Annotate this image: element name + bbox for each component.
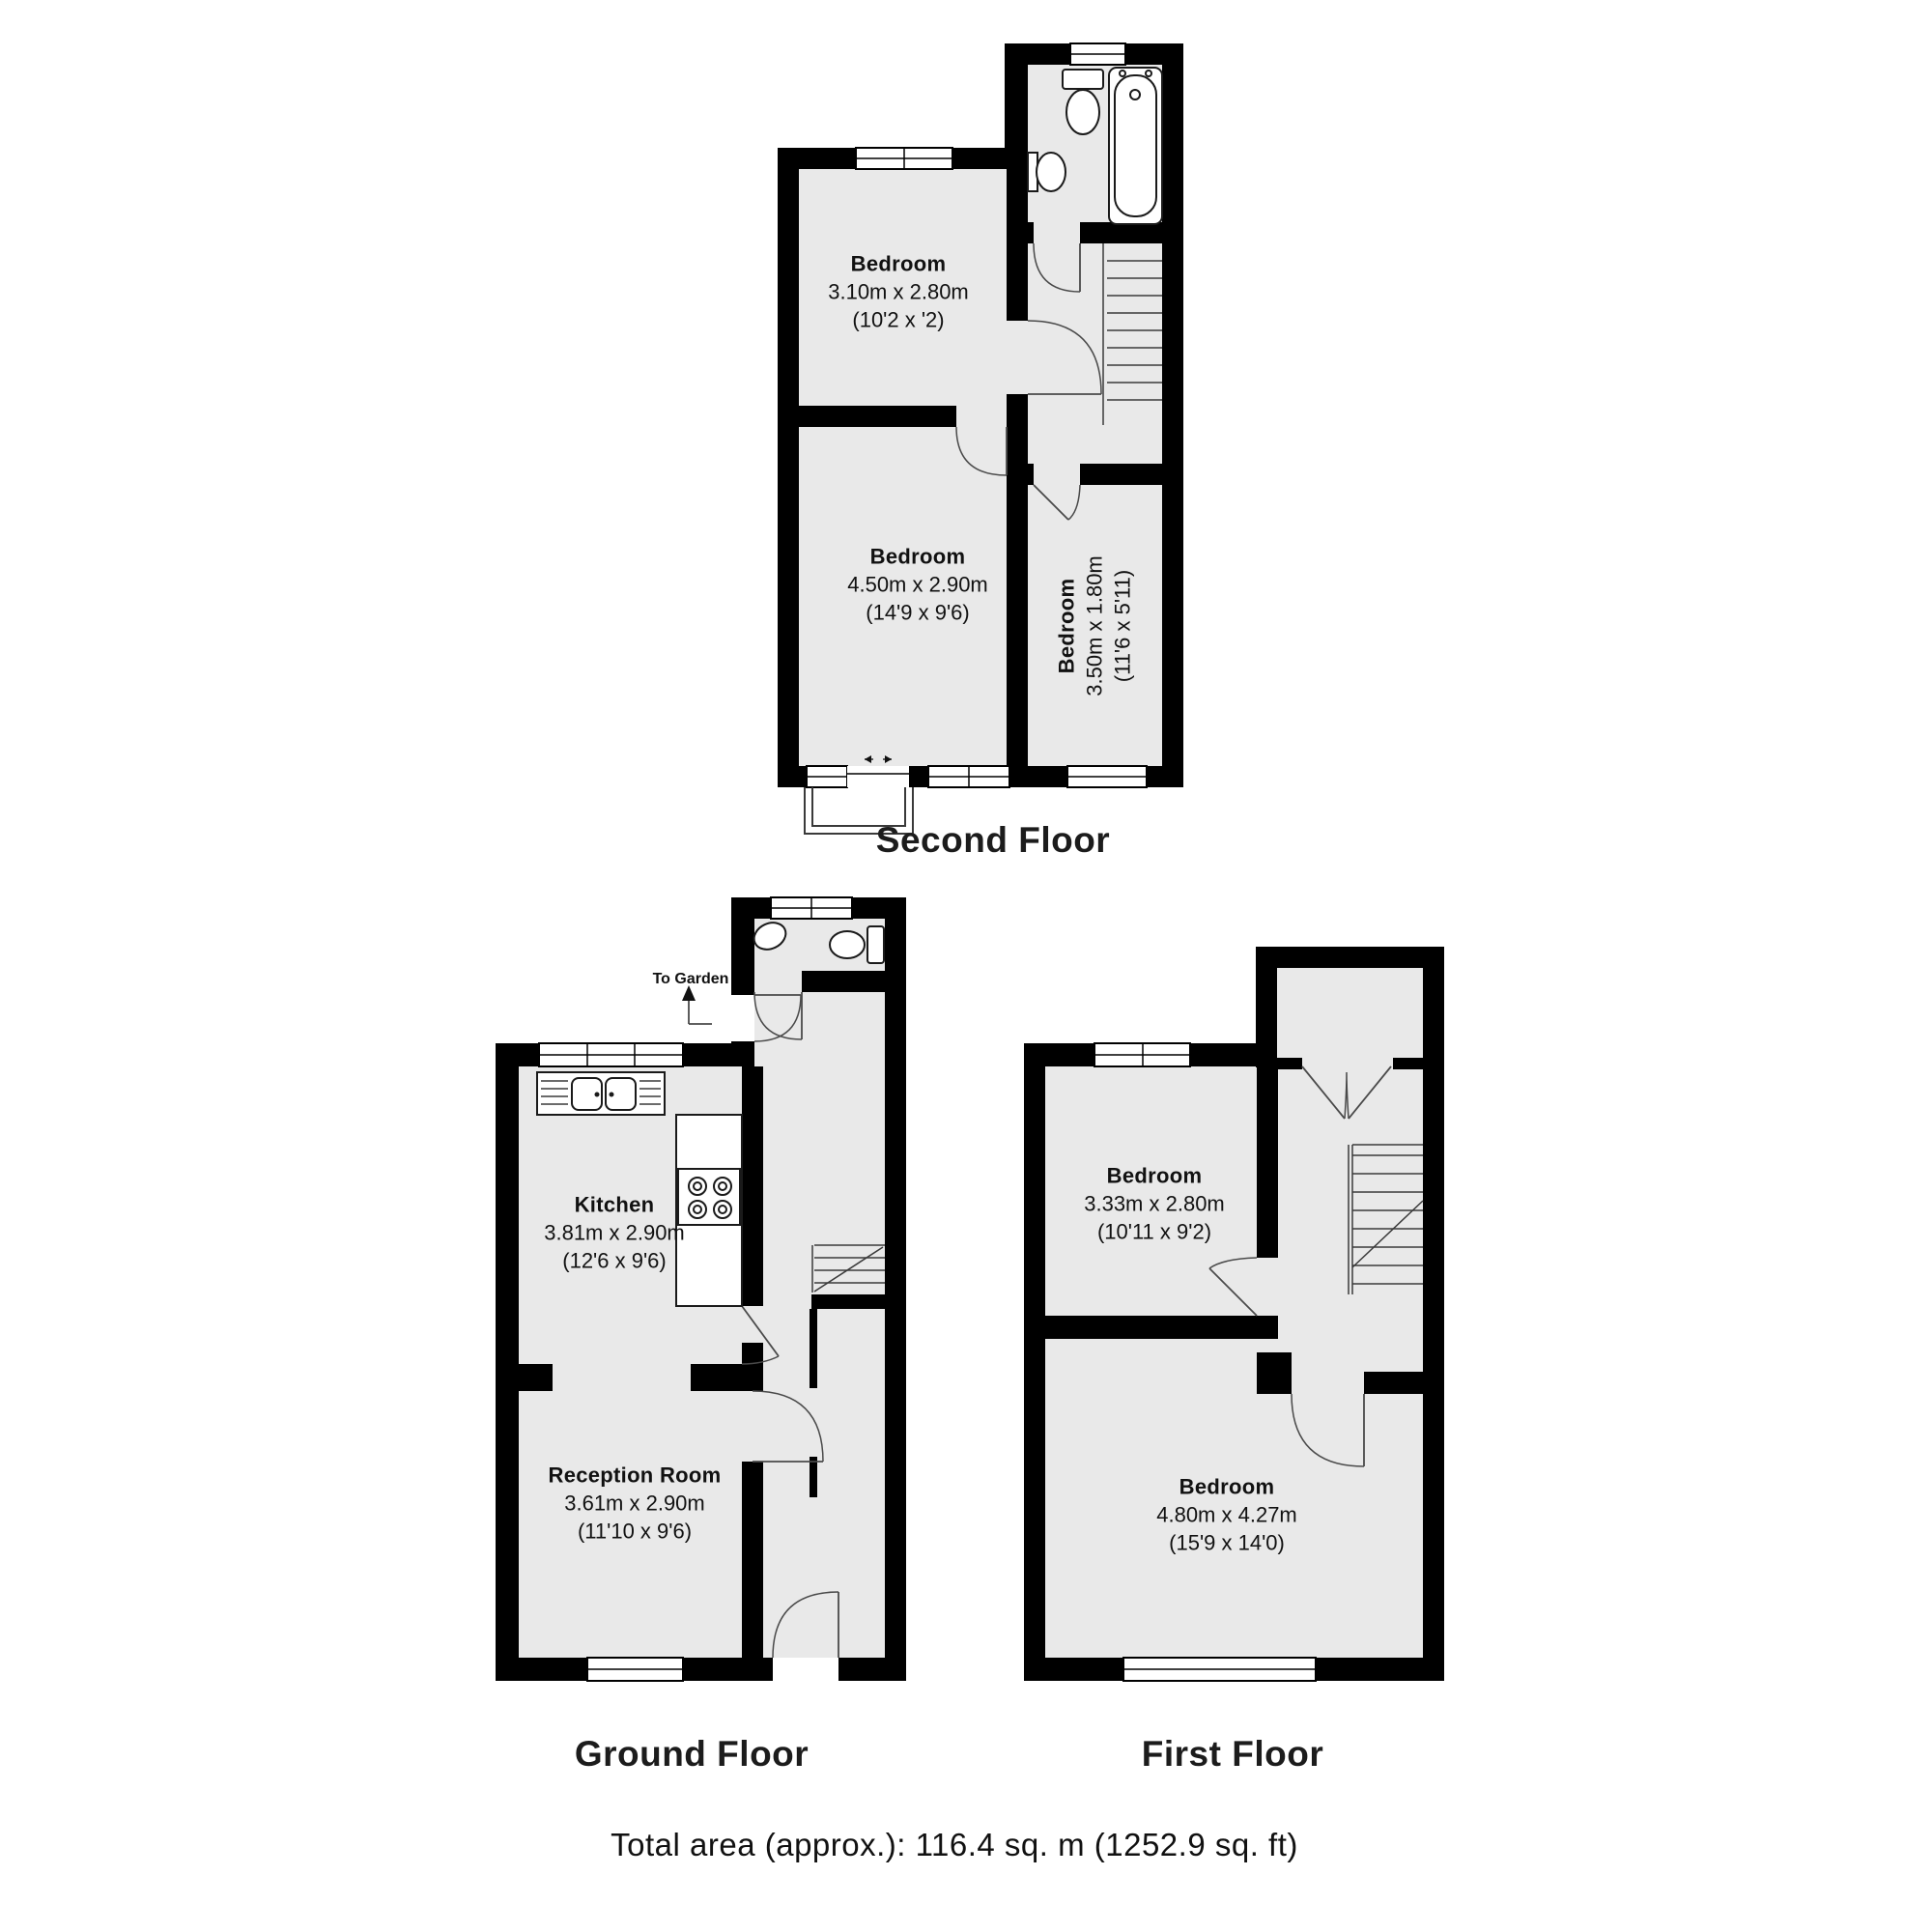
floorplan-page: Bedroom 3.10m x 2.80m (10'2 x '2) Bedroo… bbox=[0, 0, 1932, 1932]
hob-icon bbox=[678, 1169, 740, 1225]
total-area-label: Total area (approx.): 116.4 sq. m (1252.… bbox=[611, 1827, 1298, 1863]
toilet-icon bbox=[1063, 70, 1103, 134]
kitchen-sink-icon bbox=[537, 1072, 665, 1115]
first-floor-title: First Floor bbox=[1142, 1734, 1323, 1775]
second-floor-title: Second Floor bbox=[876, 820, 1110, 861]
second-floor-plan bbox=[778, 43, 1183, 834]
ground-floor-plan bbox=[496, 897, 906, 1681]
first-floor-plan bbox=[1024, 947, 1444, 1681]
room-label-kitchen: Kitchen 3.81m x 2.90m (12'6 x 9'6) bbox=[544, 1191, 685, 1275]
room-label-second-bedroom-small: Bedroom 3.10m x 2.80m (10'2 x '2) bbox=[828, 250, 969, 334]
room-label-second-bedroom-narrow: Bedroom 3.50m x 1.80m (11'6 x 5'11) bbox=[1053, 555, 1137, 696]
room-label-first-bedroom-front: Bedroom 4.80m x 4.27m (15'9 x 14'0) bbox=[1156, 1473, 1297, 1557]
room-label-second-bedroom-large: Bedroom 4.50m x 2.90m (14'9 x 9'6) bbox=[847, 543, 988, 627]
room-label-reception: Reception Room 3.61m x 2.90m (11'10 x 9'… bbox=[549, 1462, 722, 1546]
sink-icon bbox=[1028, 153, 1065, 191]
ground-floor-title: Ground Floor bbox=[575, 1734, 809, 1775]
room-label-first-bedroom-rear: Bedroom 3.33m x 2.80m (10'11 x 9'2) bbox=[1084, 1162, 1225, 1246]
to-garden-label: To Garden bbox=[653, 971, 729, 988]
to-garden-arrow-icon bbox=[682, 985, 712, 1024]
bath-icon bbox=[1109, 68, 1162, 224]
